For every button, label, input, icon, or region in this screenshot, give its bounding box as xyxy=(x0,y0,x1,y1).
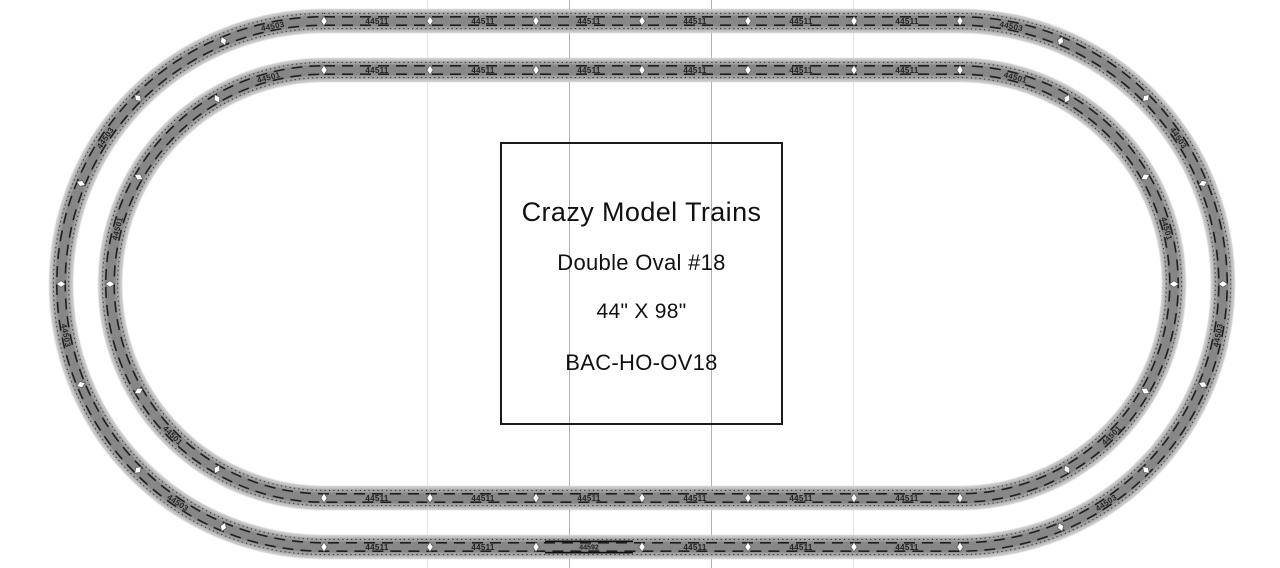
track-piece-label: 44511 xyxy=(683,543,707,552)
track-piece-label: 44511 xyxy=(365,494,389,503)
track-piece-label: 44511 xyxy=(577,66,601,75)
track-piece-label: 44511 xyxy=(895,543,919,552)
track-piece-label: 44511 xyxy=(895,66,919,75)
track-piece-label: 44511 xyxy=(365,17,389,26)
plan-title-box: Crazy Model Trains Double Oval #18 44" X… xyxy=(500,142,783,425)
track-piece-label: 44511 xyxy=(895,17,919,26)
track-piece-label: 44511 xyxy=(471,66,495,75)
track-piece-label: 44511 xyxy=(789,494,813,503)
track-piece-label: 44511 xyxy=(471,17,495,26)
track-piece-label: 44511 xyxy=(789,17,813,26)
track-piece-label: 44511 xyxy=(789,543,813,552)
track-piece-label: 44511 xyxy=(683,66,707,75)
track-piece-label: 44511 xyxy=(471,494,495,503)
track-piece-label: 44511 xyxy=(895,494,919,503)
track-piece-label: 44511 xyxy=(365,543,389,552)
track-piece-label: 44511 xyxy=(683,17,707,26)
track-piece-label: 44511 xyxy=(365,66,389,75)
plan-dimensions: 44" X 98" xyxy=(502,300,781,324)
plan-title: Crazy Model Trains xyxy=(502,197,781,228)
track-piece-label: 44511 xyxy=(789,66,813,75)
track-piece-label: 44511 xyxy=(577,17,601,26)
track-piece-label: 44511 xyxy=(471,543,495,552)
plan-subtitle: Double Oval #18 xyxy=(502,250,781,276)
track-piece-label: 44511 xyxy=(683,494,707,503)
track-piece-label: 44511 xyxy=(577,494,601,503)
rerailer-label: 44592 xyxy=(579,545,599,552)
track-plan-canvas: 4451144511445114451144511445114451144511… xyxy=(0,0,1280,568)
plan-sku: BAC-HO-OV18 xyxy=(502,350,781,376)
